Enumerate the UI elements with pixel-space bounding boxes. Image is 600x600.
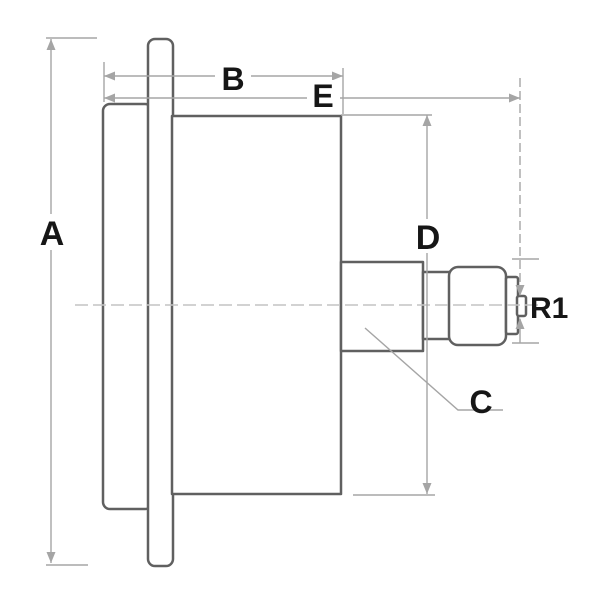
- panel-flange: [148, 39, 173, 566]
- dim-label-overall-depth: E: [312, 78, 333, 114]
- dim-label-thread-size: R1: [530, 292, 568, 325]
- hex-nut: [449, 267, 506, 345]
- gauge-bezel: [103, 104, 152, 509]
- dim-label-case-depth: B: [221, 61, 244, 97]
- dim-label-overall-height: A: [40, 215, 65, 253]
- stem-boss: [341, 262, 423, 351]
- dim-label-connection: C: [469, 384, 492, 420]
- gauge-dimension-drawing: A B E D C R1: [0, 0, 600, 600]
- dim-label-case-diameter: D: [416, 219, 441, 257]
- drawing-canvas: A B E D C R1: [0, 0, 600, 600]
- thread-nub: [517, 296, 526, 316]
